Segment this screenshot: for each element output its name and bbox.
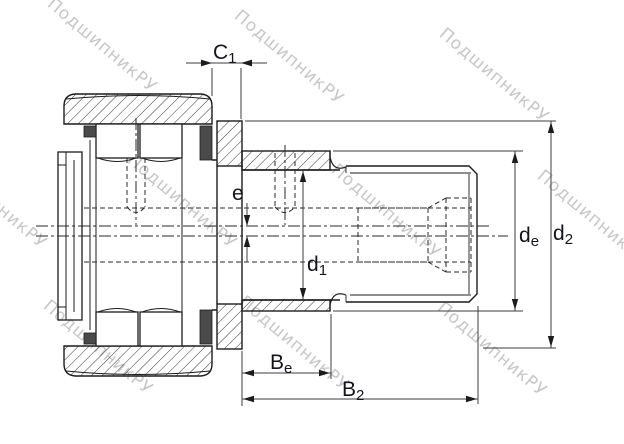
label-d1: d1 bbox=[307, 253, 327, 279]
seals bbox=[84, 126, 212, 344]
label-de: de bbox=[519, 224, 539, 250]
roller bbox=[140, 124, 182, 158]
dimension-e bbox=[244, 203, 250, 262]
e-arrow bbox=[244, 236, 250, 247]
label-b2: B2 bbox=[342, 378, 364, 404]
b2-arrow bbox=[243, 396, 254, 402]
cam-follower-section-drawing: C1 e d1 de d2 Be B2 bbox=[0, 0, 624, 444]
seal-strip bbox=[84, 126, 96, 137]
de-arrow bbox=[512, 299, 518, 310]
outer-ring-bottom-band bbox=[64, 346, 212, 376]
internal-duct-hidden bbox=[84, 208, 471, 262]
hidden-lines bbox=[84, 153, 471, 272]
c1-extension-lines bbox=[212, 68, 241, 119]
roller bbox=[96, 124, 138, 158]
label-be: Be bbox=[270, 351, 292, 377]
dimension-labels: C1 e d1 de d2 Be B2 bbox=[213, 41, 573, 404]
d1-arrow bbox=[300, 288, 306, 299]
flange-bottom-block bbox=[217, 304, 242, 349]
d2-arrow bbox=[548, 336, 554, 347]
seal-strip bbox=[84, 333, 96, 344]
c1-arrow bbox=[241, 60, 252, 67]
rollers bbox=[90, 124, 182, 346]
flange-top-block bbox=[217, 121, 242, 166]
thread-relief-groove bbox=[330, 151, 346, 311]
dimension-de bbox=[333, 151, 523, 311]
dimension-d1 bbox=[300, 170, 306, 300]
thread-minor-lines bbox=[346, 166, 471, 302]
collar-bottom-band bbox=[242, 300, 330, 311]
de-arrow bbox=[512, 152, 518, 163]
threaded-stud-end bbox=[346, 166, 477, 302]
seal-strip bbox=[200, 310, 212, 344]
hex-socket-hidden bbox=[358, 198, 471, 272]
label-d2: d2 bbox=[553, 222, 573, 248]
be-arrow bbox=[243, 370, 254, 376]
outer-ring-top-band bbox=[64, 94, 212, 124]
label-c1: C1 bbox=[213, 41, 237, 67]
roller bbox=[140, 312, 182, 346]
b2-arrow bbox=[466, 396, 477, 402]
collar-top-band bbox=[242, 151, 330, 170]
eccentric-collar-section bbox=[242, 151, 346, 311]
de-extension-lines bbox=[333, 151, 523, 311]
roller bbox=[96, 312, 138, 346]
stud-flange-section bbox=[212, 121, 242, 349]
be-arrow bbox=[319, 370, 330, 376]
d2-arrow bbox=[548, 122, 554, 133]
e-arrow bbox=[244, 215, 250, 226]
raceway-rib-arcs bbox=[98, 158, 180, 312]
label-e: e bbox=[232, 182, 244, 205]
c1-arrow bbox=[201, 60, 212, 67]
stud-cylinder-edges bbox=[242, 170, 340, 300]
engineering-drawing-canvas: ПодшипникРУ ПодшипникРУ ПодшипникРУ Подш… bbox=[0, 0, 624, 444]
d1-arrow bbox=[300, 171, 306, 182]
thread-outline bbox=[346, 166, 477, 302]
seal-strip bbox=[200, 126, 212, 160]
